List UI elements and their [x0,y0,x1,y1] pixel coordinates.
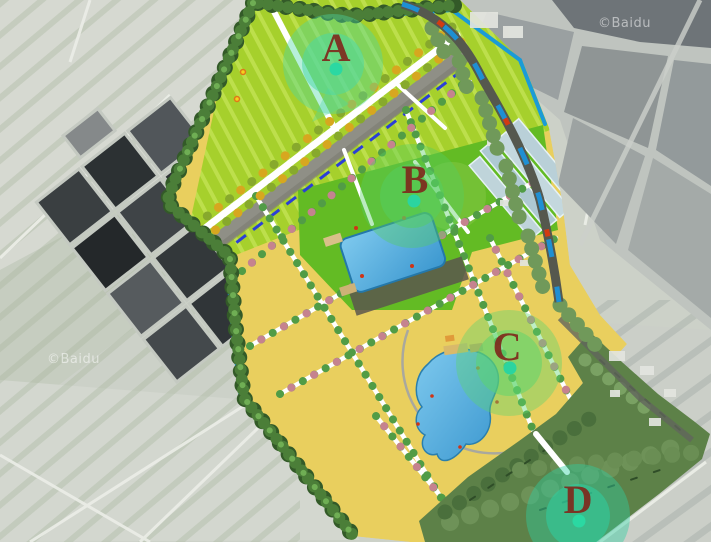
map-marker-c[interactable]: C [456,310,562,416]
watermark-bottom-left: ©Baidu [47,352,100,367]
map-marker-b[interactable]: B [360,144,464,248]
map-canvas[interactable]: A B C D ©Baidu ©Baidu [0,0,711,542]
watermark-top-right: ©Baidu [598,16,651,31]
